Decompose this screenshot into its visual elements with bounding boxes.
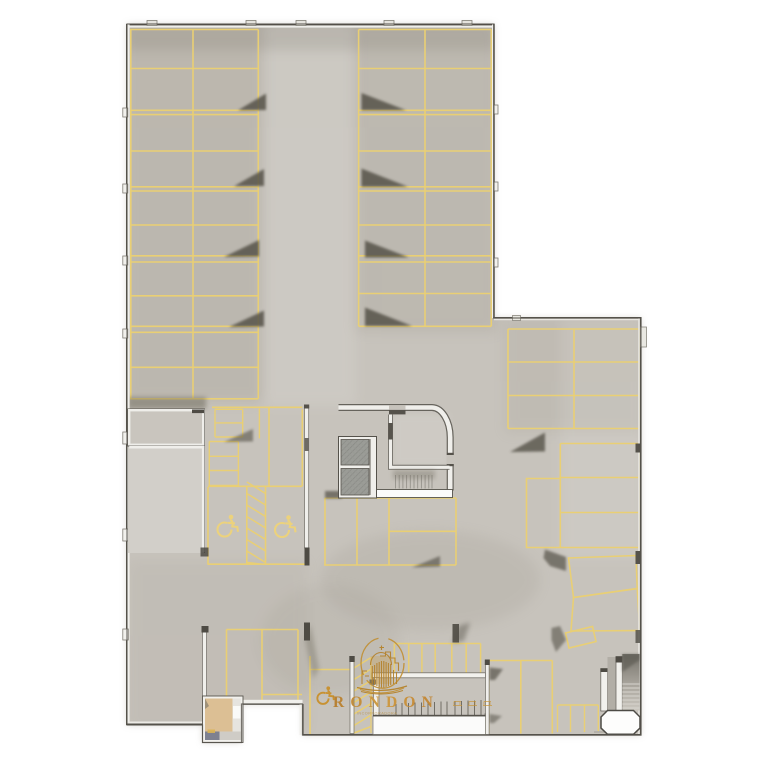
svg-text:INCORPORADORA: INCORPORADORA bbox=[357, 712, 397, 716]
svg-text:RONDON: RONDON bbox=[333, 694, 439, 711]
